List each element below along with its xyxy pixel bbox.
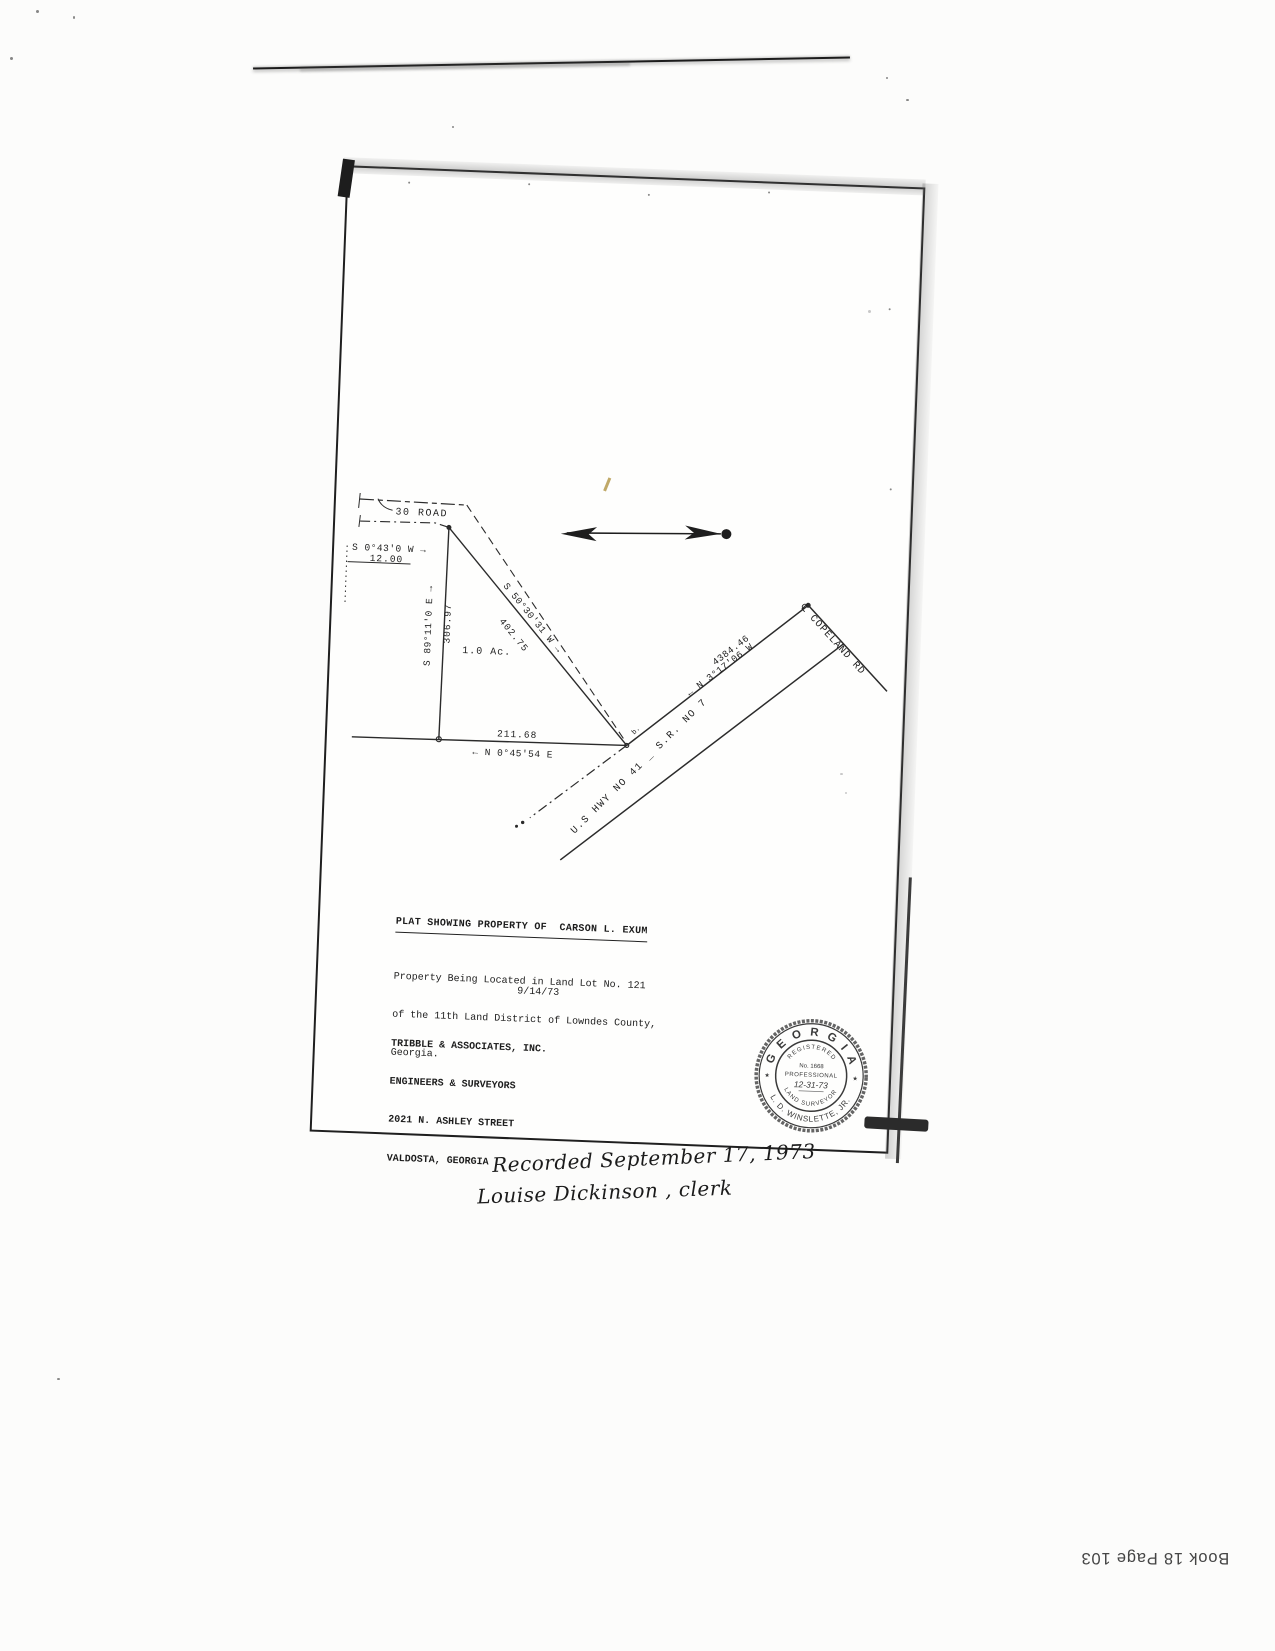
scan-speck bbox=[73, 16, 75, 19]
road-tick bbox=[359, 493, 361, 508]
road-edge-south bbox=[360, 520, 449, 527]
distance-north-line-label: 306.97 bbox=[441, 603, 454, 644]
distance-west-label: 12.00 bbox=[369, 553, 403, 565]
copeland-road-label: ℄ COPELAND RD bbox=[796, 602, 866, 678]
parcel-diagonal-dashed bbox=[458, 505, 633, 739]
road-label: 30 ROAD bbox=[395, 507, 448, 520]
firm-line: ENGINEERS & SURVEYORS bbox=[389, 1077, 545, 1096]
highway-far-edge-line bbox=[560, 633, 844, 870]
scan-speck bbox=[452, 126, 454, 128]
corner-point bbox=[447, 525, 451, 529]
scan-speck bbox=[57, 1378, 60, 1380]
highway-label: U.S HWY NO 41 _ S.R. NO 7 bbox=[569, 697, 710, 837]
scan-speck bbox=[10, 57, 13, 60]
seal-registered-text: REGISTERED bbox=[787, 1044, 838, 1063]
scan-speck bbox=[886, 77, 888, 79]
bearing-diagonal-label: S 50°30'31 W → bbox=[501, 581, 565, 655]
seal-professional-text: PROFESSIONAL bbox=[785, 1072, 838, 1080]
plat-date: 9/14/73 bbox=[517, 986, 559, 1000]
firm-line: TRIBBLE & ASSOCIATES, INC. bbox=[391, 1038, 547, 1057]
dash-dot bbox=[521, 821, 523, 823]
surveyor-seal: G E O R G I A L. D. WINSLETTE, JR. REGIS… bbox=[733, 998, 889, 1154]
bearing-south-label: ← N 0°45'54 E bbox=[472, 746, 553, 760]
scan-speck bbox=[36, 10, 39, 13]
bearing-north-line-label: S 89°11'0 E → bbox=[422, 585, 436, 666]
firm-line: 2021 N. ASHLEY STREET bbox=[388, 1115, 544, 1134]
book-page-reference: Book 18 Page 103 bbox=[1070, 1539, 1240, 1567]
road-edge-north bbox=[360, 499, 467, 505]
seal-number-text: No. 1668 bbox=[799, 1063, 824, 1070]
scan-speck bbox=[906, 99, 909, 101]
dash-dot bbox=[515, 825, 517, 827]
area-label: 1.0 Ac. bbox=[462, 646, 511, 659]
scanned-plat-page: { "document": { "book_page": "Book 18 Pa… bbox=[0, 0, 1275, 1651]
tie-bearing-label: ← N 3°17'06 W bbox=[685, 641, 756, 699]
north-arrow bbox=[561, 521, 732, 547]
seal-star-left: ★ bbox=[764, 1072, 770, 1079]
parcel-south-line bbox=[352, 735, 627, 748]
distance-south-label: 211.68 bbox=[497, 728, 538, 741]
west-dotted-line bbox=[345, 546, 347, 605]
plat-sheet: 30 ROAD S 0°43'0 W → 12.00 S 89°11'0 E →… bbox=[310, 165, 926, 1154]
seal-date-underline bbox=[799, 1091, 824, 1092]
seal-handwritten-date: 12-31-73 bbox=[794, 1079, 829, 1090]
seal-star-right: ★ bbox=[852, 1075, 858, 1082]
